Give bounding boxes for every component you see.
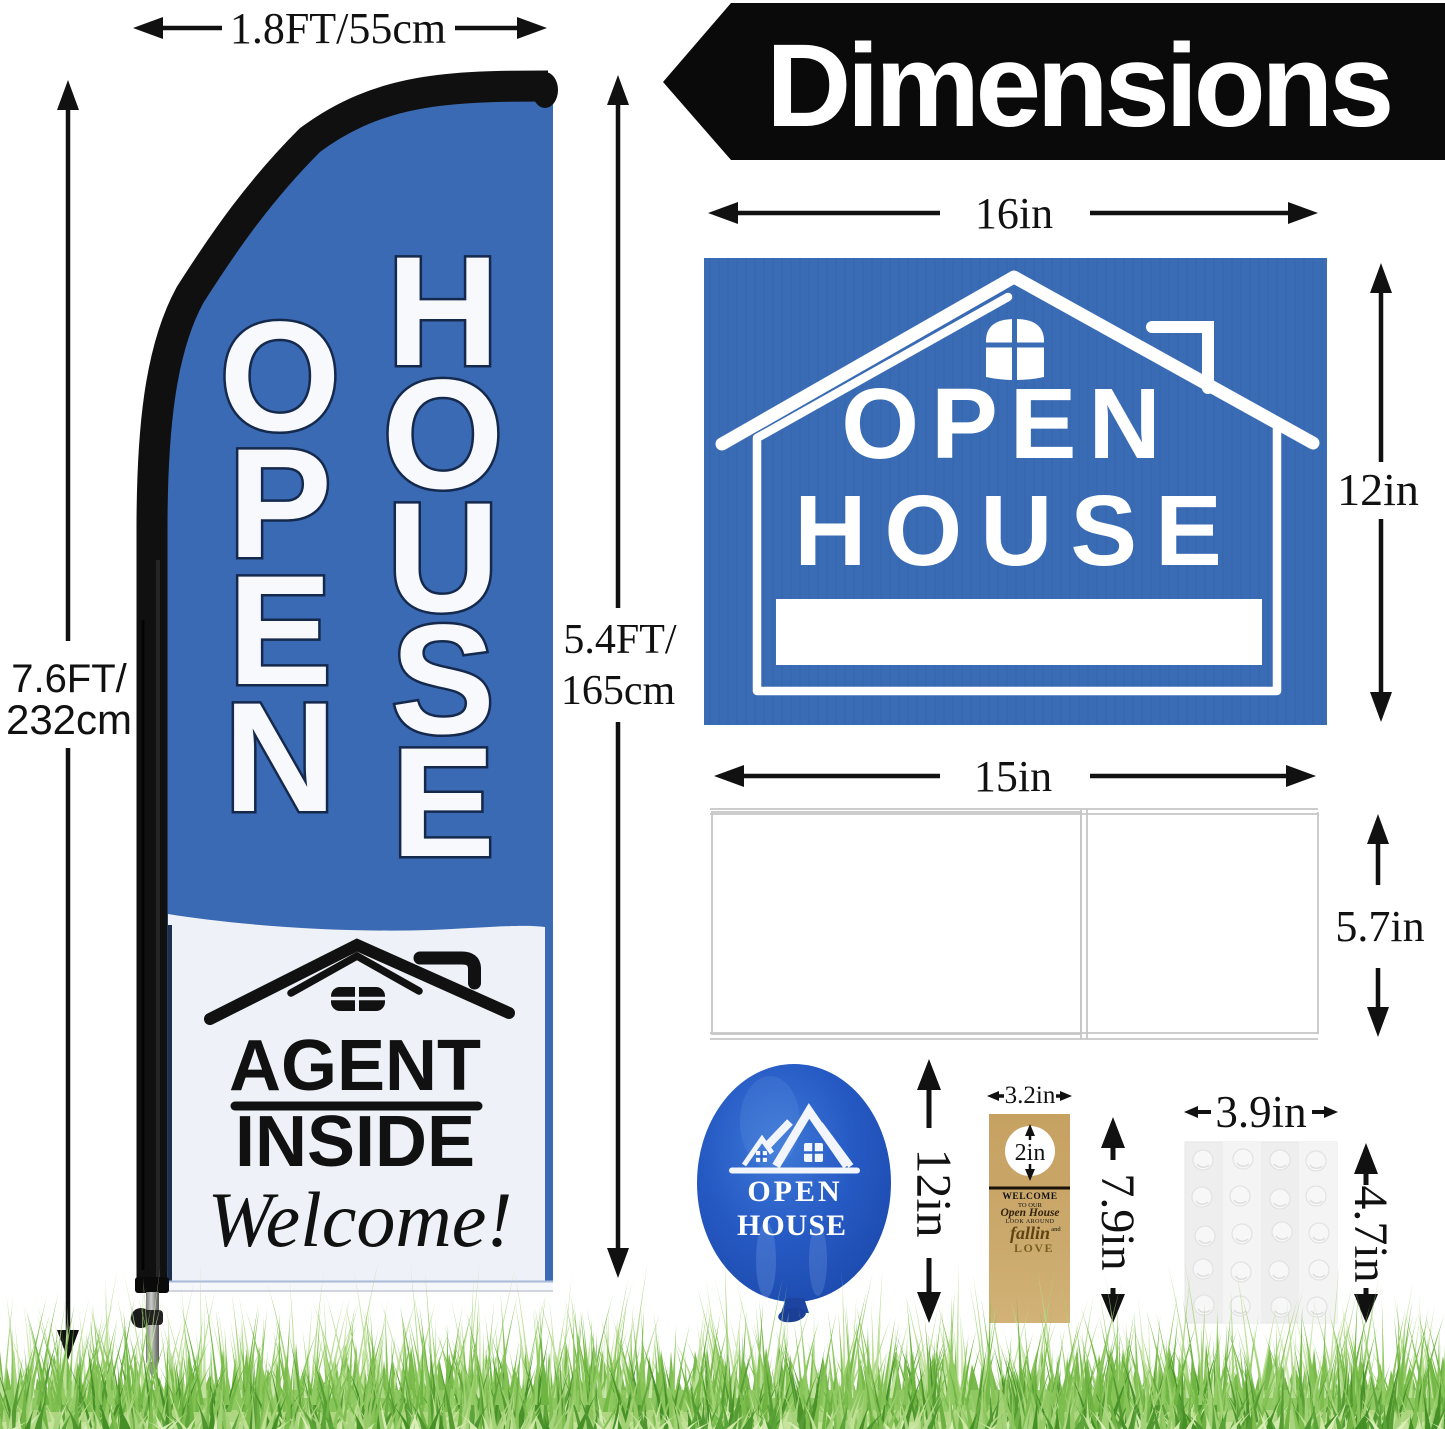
svg-text:4.7in: 4.7in	[1344, 1185, 1397, 1282]
svg-text:Open House: Open House	[1000, 1207, 1059, 1219]
svg-text:LOVE: LOVE	[1014, 1241, 1054, 1255]
svg-text:AGENT: AGENT	[229, 1026, 481, 1106]
svg-text:HOUSE: HOUSE	[737, 1209, 847, 1242]
svg-text:E: E	[391, 716, 495, 890]
svg-text:2in: 2in	[1015, 1140, 1046, 1166]
svg-text:N: N	[224, 671, 337, 845]
svg-text:and: and	[1051, 1226, 1061, 1233]
svg-text:Dimensions: Dimensions	[766, 20, 1390, 152]
svg-text:5.7in: 5.7in	[1335, 902, 1424, 951]
svg-text:WELCOME: WELCOME	[1002, 1192, 1057, 1202]
svg-text:16in: 16in	[975, 189, 1053, 238]
svg-text:5.4FT/: 5.4FT/	[563, 617, 677, 663]
svg-text:12in: 12in	[1337, 464, 1419, 515]
svg-text:232cm: 232cm	[6, 696, 132, 743]
svg-text:HOUSE: HOUSE	[794, 475, 1240, 587]
svg-text:INSIDE: INSIDE	[235, 1102, 475, 1182]
svg-text:OPEN: OPEN	[841, 368, 1172, 480]
svg-text:165cm: 165cm	[561, 668, 676, 714]
svg-text:OPEN: OPEN	[747, 1175, 842, 1208]
svg-text:3.9in: 3.9in	[1215, 1087, 1306, 1137]
svg-text:15in: 15in	[974, 752, 1052, 801]
svg-text:1.8FT/55cm: 1.8FT/55cm	[230, 4, 446, 53]
svg-text:7.9in: 7.9in	[1091, 1173, 1144, 1270]
svg-text:12in: 12in	[907, 1149, 963, 1238]
svg-text:3.2in: 3.2in	[1005, 1082, 1056, 1109]
svg-text:fallin: fallin	[1010, 1223, 1050, 1243]
svg-text:7.6FT/: 7.6FT/	[11, 657, 127, 701]
svg-text:Welcome!: Welcome!	[208, 1176, 513, 1263]
